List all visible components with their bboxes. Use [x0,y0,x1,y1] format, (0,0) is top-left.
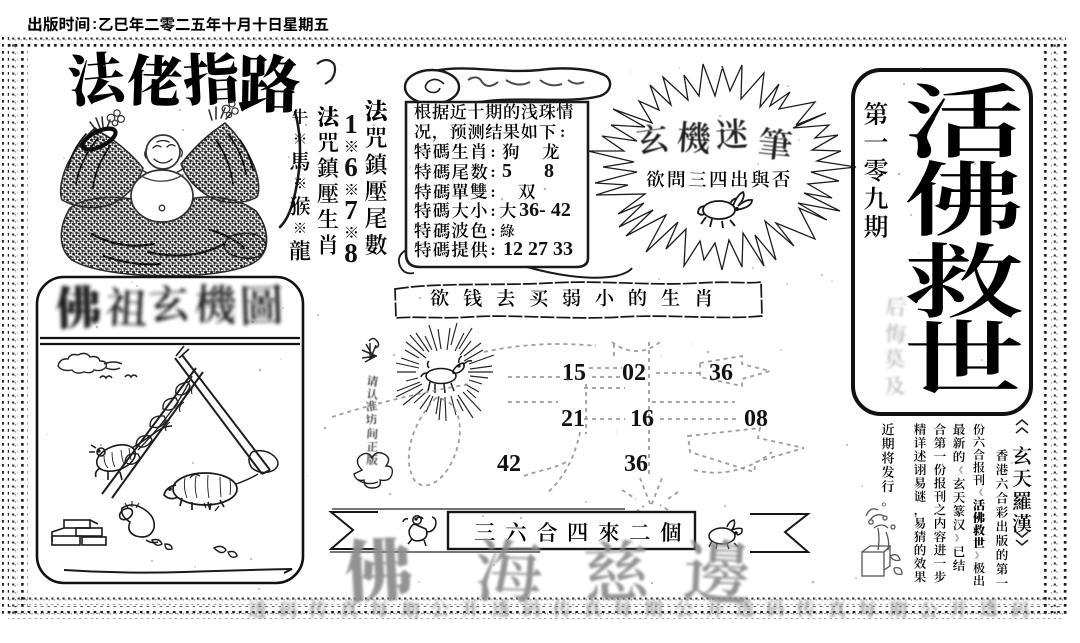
svg-text:12 27 33: 12 27 33 [503,238,573,260]
svg-text:8: 8 [544,160,554,182]
svg-text:6: 6 [344,152,358,182]
svg-text:02: 02 [622,360,646,386]
svg-text:7: 7 [344,195,358,225]
svg-text::: : [490,223,495,240]
svg-text:15: 15 [562,360,586,386]
svg-text:5: 5 [502,160,512,182]
svg-text:1: 1 [344,109,358,139]
svg-text:36: 36 [709,360,733,386]
svg-text::: : [490,203,495,220]
svg-text::: : [490,144,495,161]
svg-text::: : [560,124,565,141]
svg-text:16: 16 [630,406,654,432]
svg-text:08: 08 [744,406,768,432]
svg-text::: : [92,16,97,33]
svg-text:8: 8 [344,238,358,268]
svg-text::: : [490,184,495,201]
svg-text:21: 21 [561,406,585,432]
svg-text::: : [490,164,495,181]
svg-text::: : [490,242,495,259]
svg-text:36: 36 [624,451,648,477]
svg-text:42: 42 [497,451,521,477]
svg-text:36- 42: 36- 42 [519,199,571,221]
